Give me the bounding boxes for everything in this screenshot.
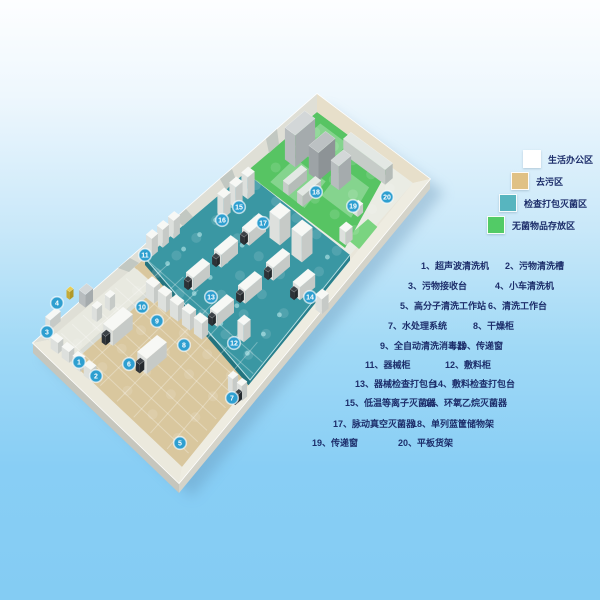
light-dot [171,250,181,260]
plan-marker-16: 16 [216,214,229,227]
light-dot [117,344,127,354]
ceiling-light-dot [325,255,330,260]
plan-marker-number: 9 [155,319,159,326]
plan-marker-number: 8 [182,343,186,350]
light-dot [271,162,281,172]
plan-marker-4: 4 [51,297,64,310]
light-dot [208,391,218,401]
light-dot [367,204,377,214]
plan-marker-6: 6 [123,358,136,371]
equipment-box [241,167,254,200]
plan-marker-number: 1 [77,360,81,367]
plan-marker-number: 17 [259,221,267,228]
plan-marker-number: 6 [127,362,131,369]
plan-marker-14: 14 [304,291,317,304]
plan-marker-number: 19 [349,204,357,211]
ceiling-light-dot [192,291,197,296]
light-dot [220,329,230,339]
light-dot [148,409,158,419]
plan-marker-11: 11 [139,249,152,262]
plan-marker-number: 15 [235,205,243,212]
light-dot [136,325,146,335]
light-dot [132,286,142,296]
plan-marker-19: 19 [347,200,360,213]
plan-marker-number: 2 [94,374,98,381]
plan-marker-number: 5 [178,441,182,448]
plan-marker-number: 12 [230,341,238,348]
plan-marker-1: 1 [73,356,86,369]
light-dot [190,412,200,422]
light-dot [311,229,321,239]
light-dot [235,271,245,281]
plan-marker-number: 4 [55,301,59,308]
light-dot [152,268,162,278]
ceiling-light-dot [181,247,186,252]
equipment-box [67,286,74,300]
plan-marker-3: 3 [41,326,54,339]
ceiling-light-dot [165,261,170,266]
equipment-box [168,211,180,238]
ceiling-light-dot [277,312,282,317]
plan-marker-number: 13 [207,295,215,302]
light-dot [314,267,324,277]
light-dot [184,369,194,379]
plan-marker-2: 2 [90,370,103,383]
ceiling-light-dot [234,303,239,308]
ceiling-light-dot [197,232,202,237]
light-dot [332,246,342,256]
plan-marker-5: 5 [174,437,187,450]
plan-marker-20: 20 [381,191,394,204]
light-dot [92,321,102,331]
light-dot [330,209,340,219]
plan-marker-13: 13 [205,291,218,304]
plan-marker-15: 15 [233,201,246,214]
light-dot [254,251,264,261]
floorplan-drawing: 1234567891011121314151617181920 [0,0,600,600]
plan-marker-9: 9 [151,315,164,328]
plan-marker-number: 3 [45,330,49,337]
equipment-box [157,220,169,247]
plan-marker-18: 18 [310,186,323,199]
equipment-box [270,203,291,246]
plan-marker-number: 18 [312,190,320,197]
plan-marker-number: 11 [141,253,149,260]
plan-marker-number: 10 [138,305,146,312]
equipment-box [237,315,250,343]
light-dot [202,349,212,359]
plan-marker-12: 12 [228,337,241,350]
light-dot [166,389,176,399]
equipment-box [292,220,313,263]
light-dot [179,328,189,338]
plan-marker-number: 7 [230,396,234,403]
plan-marker-10: 10 [136,301,149,314]
plan-marker-number: 14 [306,295,314,302]
plan-marker-number: 20 [383,195,391,202]
ceiling-light-dot [245,351,250,356]
plan-marker-8: 8 [178,339,191,352]
plan-marker-7: 7 [226,392,239,405]
ceiling-light-dot [261,332,266,337]
plan-marker-17: 17 [257,217,270,230]
light-dot [123,386,133,396]
plan-marker-number: 16 [218,218,226,225]
cssd-floorplan-infographic: 1234567891011121314151617181920 生活办公区去污区… [0,0,600,600]
